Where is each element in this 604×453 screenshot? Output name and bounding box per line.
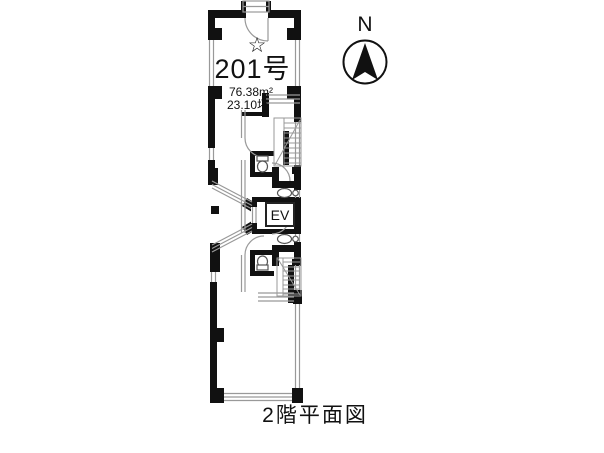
floorplan-page: ☆ 201号 76.38m² 23.10坪 EV N 2階平面図 bbox=[0, 0, 604, 453]
compass-n-label: N bbox=[349, 13, 381, 36]
elevator-label: EV bbox=[265, 202, 295, 227]
north-compass bbox=[344, 41, 387, 84]
plan-caption: 2階平面図 bbox=[234, 404, 396, 427]
elevator-door-lines bbox=[251, 207, 258, 223]
unit-area-tsubo: 23.10坪 bbox=[227, 99, 269, 112]
floorplan-drawing bbox=[0, 0, 604, 453]
unit-number-label: 201号 bbox=[205, 55, 300, 85]
